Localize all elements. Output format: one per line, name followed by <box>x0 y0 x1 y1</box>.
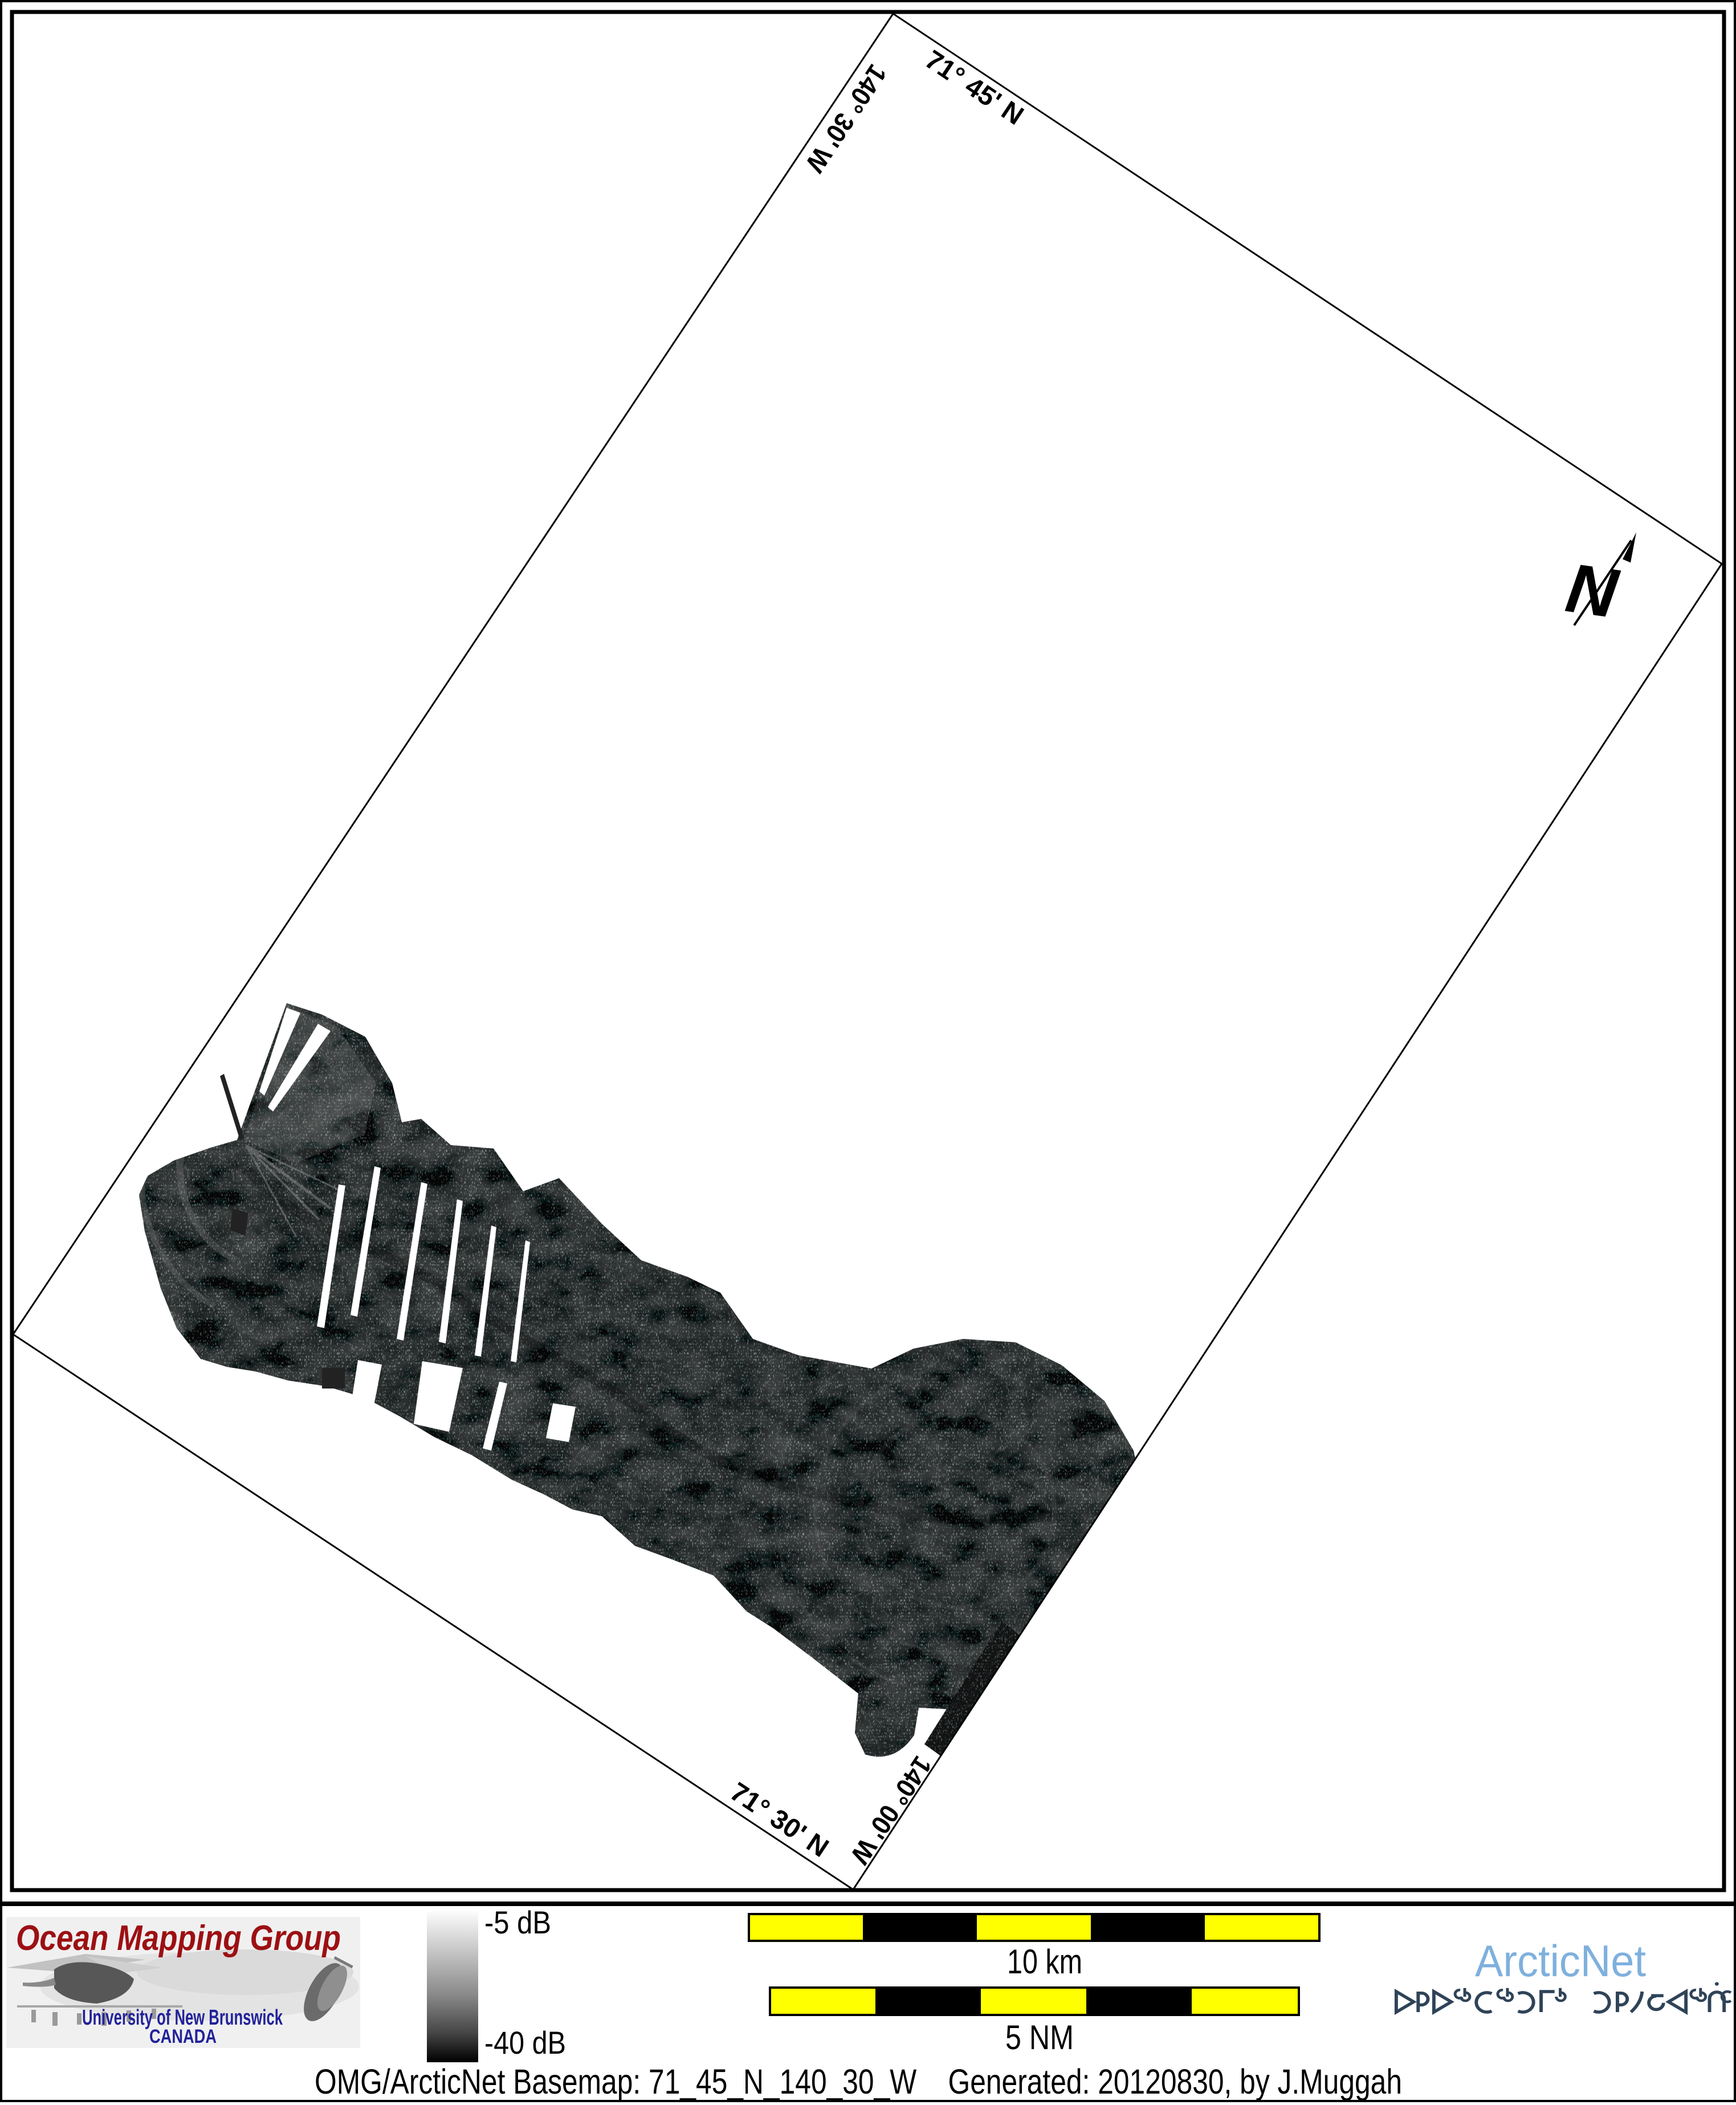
svg-text:Ocean Mapping Group: Ocean Mapping Group <box>16 1919 341 1958</box>
svg-text:-5 dB: -5 dB <box>484 1904 551 1940</box>
svg-text:ArcticNet: ArcticNet <box>1475 1936 1646 1986</box>
svg-text:OMG/ArcticNet Basemap: 71_45_N: OMG/ArcticNet Basemap: 71_45_N_140_30_W … <box>315 2062 1402 2101</box>
svg-text:10 km: 10 km <box>1007 1943 1082 1981</box>
svg-text:CANADA: CANADA <box>149 2026 217 2047</box>
svg-text:-40 dB: -40 dB <box>484 2025 566 2061</box>
svg-text:5 NM: 5 NM <box>1005 2018 1074 2057</box>
